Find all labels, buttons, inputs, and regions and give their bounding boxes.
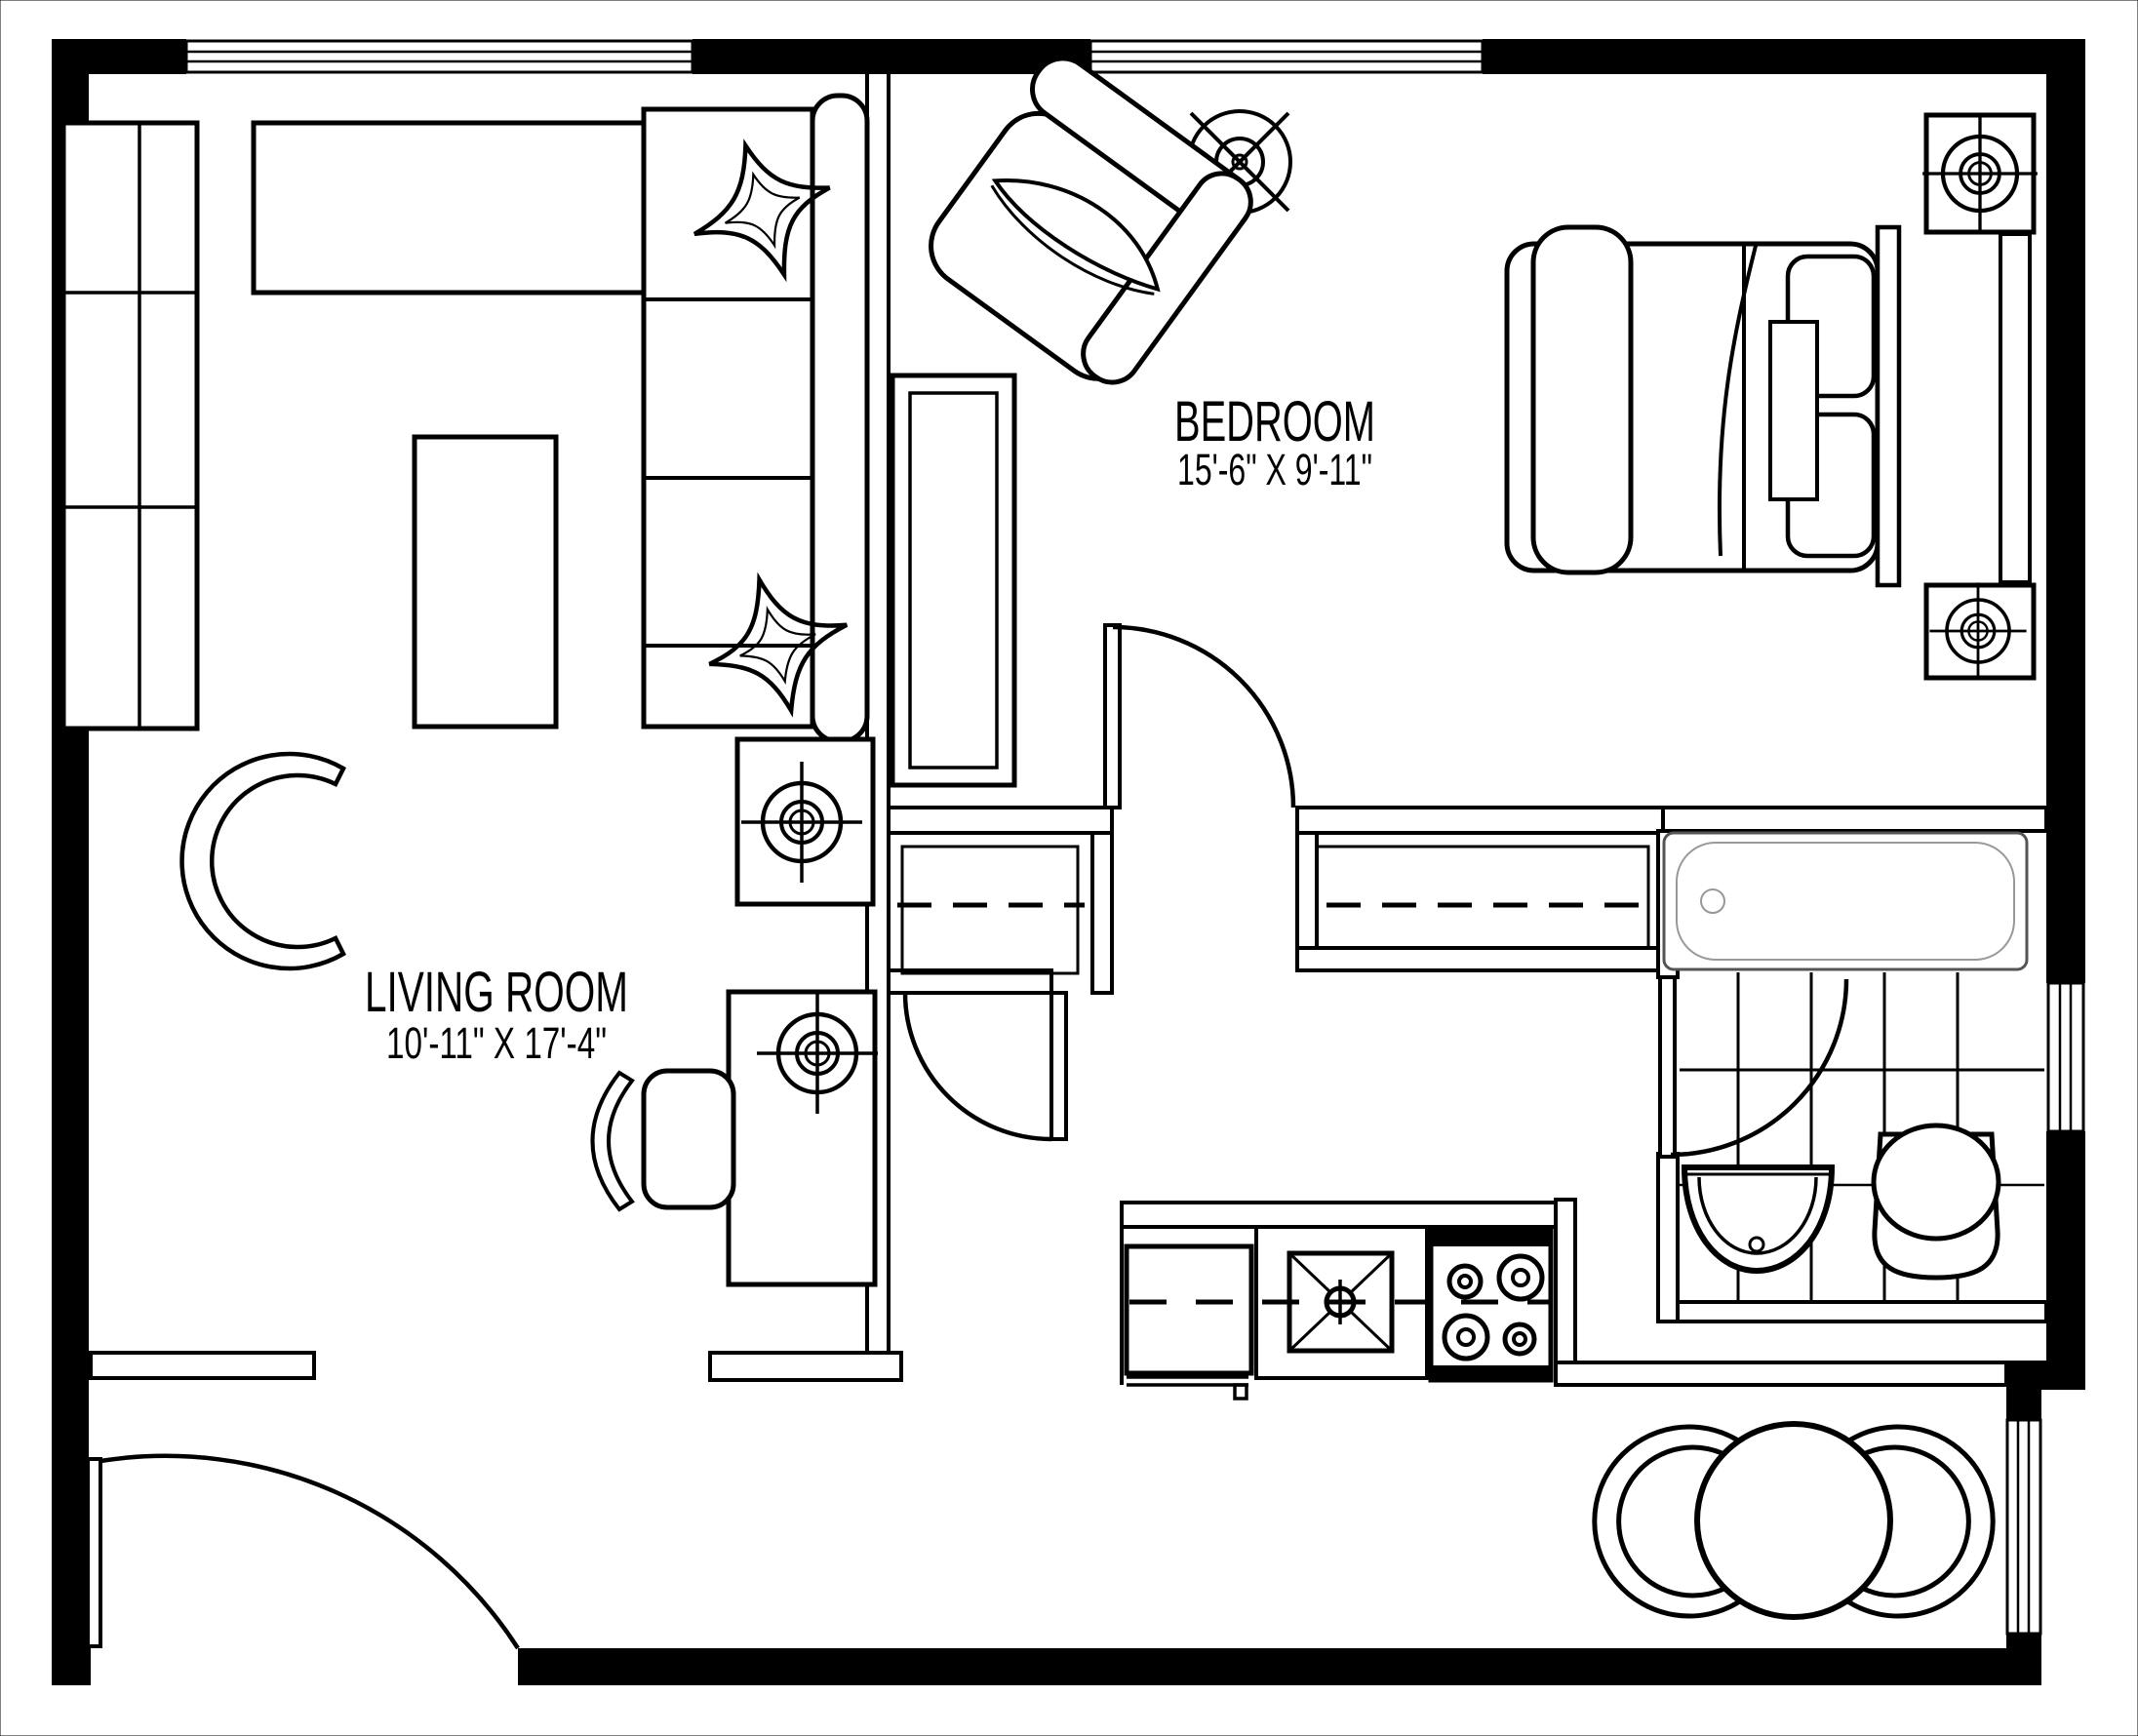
bathroom-sink [1684, 1167, 1832, 1271]
door-leaf [1660, 977, 1675, 1157]
bolster [1770, 322, 1817, 499]
window-dining [2007, 1420, 2040, 1634]
toilet [1874, 1125, 1999, 1278]
bathtub [1664, 833, 2027, 969]
bookcase [63, 123, 197, 729]
window-bathroom [2048, 983, 2083, 1131]
window-living-room [186, 41, 693, 72]
living-room-dimensions: 10'-11" X 17'-4" [386, 1018, 607, 1068]
coffee-table [415, 437, 556, 727]
bedroom-dimensions: 15'-6" X 9'-11" [1177, 445, 1372, 494]
curved-chair [182, 754, 343, 968]
door-swing-arc [100, 1456, 518, 1648]
floor-plan-page: BEDROOM 15'-6" X 9'-11" LIVING ROOM 10'-… [0, 0, 2138, 1736]
dishwasher [1127, 1246, 1251, 1373]
console-table [254, 123, 654, 293]
dining-set [1595, 1424, 1993, 1617]
entry-door [88, 1456, 518, 1648]
headboard [1878, 227, 1899, 585]
bedroom-door [1105, 625, 1293, 808]
door-leaf [88, 1459, 100, 1646]
desk [729, 992, 878, 1284]
bed [1507, 227, 2030, 585]
living-room-label: LIVING ROOM [365, 961, 628, 1024]
speaker-cabinet [737, 739, 873, 904]
closet-bedroom-side [1317, 847, 1650, 948]
door-leaf [1051, 993, 1066, 1139]
nightstand [1926, 582, 2034, 679]
sectional-sofa [644, 96, 867, 741]
headboard-shelf [2000, 234, 2030, 582]
dishwasher-handle [1235, 1385, 1247, 1399]
armchair [908, 47, 1261, 400]
kitchen [1122, 1203, 1575, 1399]
closet-door [905, 993, 1066, 1139]
door-swing-arc [1113, 627, 1293, 808]
door-swing-arc [1671, 979, 1846, 1155]
door-leaf [1105, 625, 1120, 808]
media-console-shelf [710, 1353, 901, 1380]
door-swing-arc [905, 993, 1051, 1139]
wall-shelf-entry [91, 1353, 314, 1378]
sofa-seats [644, 109, 812, 727]
floor-plan-svg: BEDROOM 15'-6" X 9'-11" LIVING ROOM 10'-… [0, 0, 2138, 1736]
nightstand [1922, 115, 2038, 232]
duvet-roll [1533, 227, 1631, 572]
closet-living-side [897, 847, 1085, 973]
window-bedroom [1090, 41, 1483, 72]
kitchen-counter [1122, 1203, 1575, 1227]
stove [1431, 1231, 1551, 1380]
wardrobe [892, 375, 1014, 785]
bathroom-door [1660, 977, 1846, 1157]
desk-chair [593, 1071, 734, 1209]
dining-table [1697, 1424, 1890, 1617]
